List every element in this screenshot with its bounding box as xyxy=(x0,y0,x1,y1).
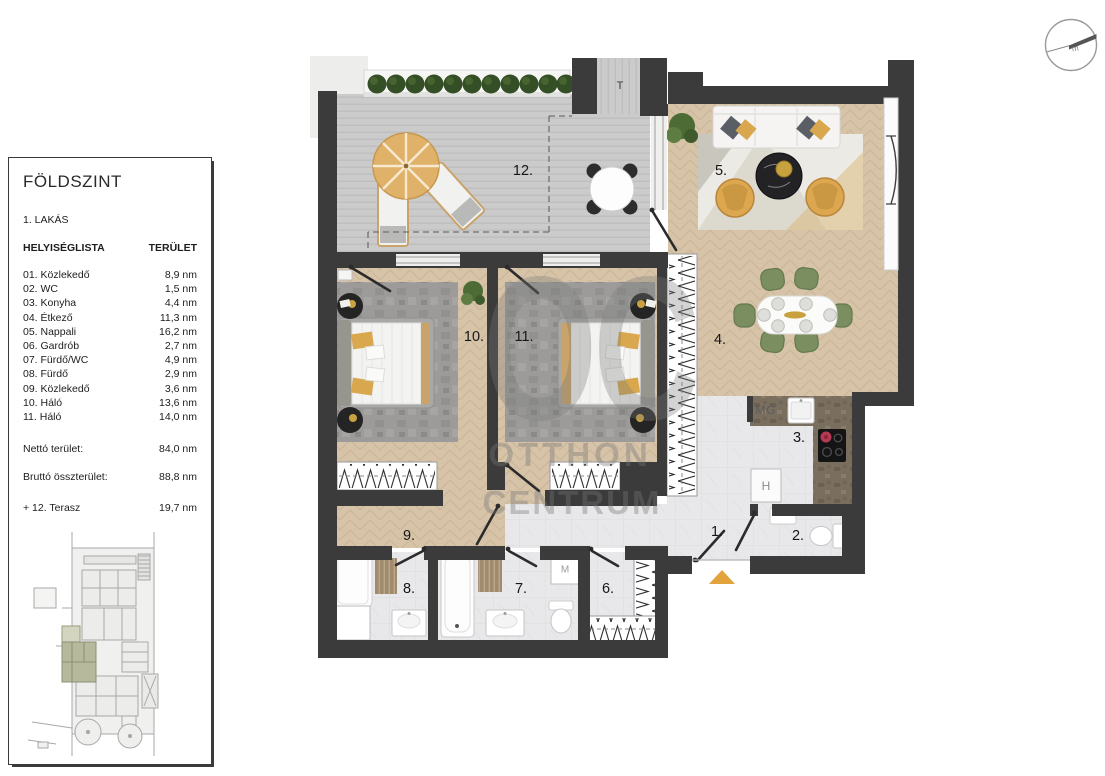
room-list-item: 04. Étkező11,3 nm xyxy=(23,311,197,325)
site-plan-thumbnail xyxy=(26,526,194,762)
cooktop xyxy=(818,429,846,462)
gross-area-row: Bruttó összterület:88,8 nm xyxy=(23,471,197,483)
armchair xyxy=(806,178,844,216)
bath-mat xyxy=(478,560,502,592)
wardrobe xyxy=(550,462,620,490)
terrace-table-set xyxy=(587,164,638,215)
hall-closet xyxy=(667,254,697,496)
kitchen-sink xyxy=(788,398,814,423)
room-list-item: 09. Közlekedő3,6 nm xyxy=(23,382,197,396)
room-list-item: 08. Fürdő2,9 nm xyxy=(23,367,197,381)
toilet xyxy=(810,524,843,548)
info-panel: FÖLDSZINT 1. LAKÁS HELYISÉGLISTA TERÜLET… xyxy=(8,157,212,765)
room-list-item: 10. Háló13,6 nm xyxy=(23,396,197,410)
room-list-item: 02. WC1,5 nm xyxy=(23,282,197,296)
room-list-item: 03. Konyha4,4 nm xyxy=(23,296,197,310)
bathroom-sink xyxy=(486,610,524,636)
room-list-item: 01. Közlekedő8,9 nm xyxy=(23,268,197,282)
list-header: HELYISÉGLISTA TERÜLET xyxy=(23,242,197,254)
washing-machine xyxy=(551,556,579,584)
nightstand xyxy=(630,407,656,433)
room-list-item: 06. Gardrób2,7 nm xyxy=(23,339,197,353)
room-list: 01. Közlekedő8,9 nm 02. WC1,5 nm 03. Kon… xyxy=(23,268,197,424)
floorplan-page: OC OTTHON CENTRUM 12. 5. 4. 3. 2. 1. 10.… xyxy=(0,0,1105,776)
unit-label: 1. LAKÁS xyxy=(23,214,199,226)
nightstand xyxy=(337,293,363,319)
net-area-row: Nettó terület:84,0 nm xyxy=(23,443,197,455)
hedge-bushes xyxy=(368,75,576,94)
sofa xyxy=(713,106,840,148)
living-room-window xyxy=(884,98,898,270)
bedroom-window xyxy=(543,254,600,266)
fridge xyxy=(751,469,781,502)
room-list-item: 05. Nappali16,2 nm xyxy=(23,325,197,339)
double-bed xyxy=(558,318,654,408)
toilet xyxy=(549,601,573,633)
terrace-glass-wall xyxy=(651,116,667,210)
room-list-item: 07. Fürdő/WC4,9 nm xyxy=(23,353,197,367)
bedroom-window xyxy=(396,254,460,266)
wall-niche xyxy=(336,606,370,640)
terrace-area-row: + 12. Terasz19,7 nm xyxy=(23,502,197,514)
bathroom-sink xyxy=(392,610,426,636)
nightstand xyxy=(337,407,363,433)
bathtub xyxy=(441,550,474,637)
room-list-item: 11. Háló14,0 nm xyxy=(23,410,197,424)
page-title: FÖLDSZINT xyxy=(23,172,199,192)
double-bed xyxy=(338,318,434,408)
parasol xyxy=(373,133,439,199)
coffee-table xyxy=(756,153,802,199)
bath-mat xyxy=(375,558,397,594)
wall-vent xyxy=(338,270,352,280)
armchair xyxy=(716,179,754,217)
list-header-name: HELYISÉGLISTA xyxy=(23,242,105,254)
list-header-area: TERÜLET xyxy=(149,242,197,254)
north-indicator xyxy=(1046,20,1097,71)
entrance-marker xyxy=(709,570,735,584)
wardrobe xyxy=(337,462,437,490)
